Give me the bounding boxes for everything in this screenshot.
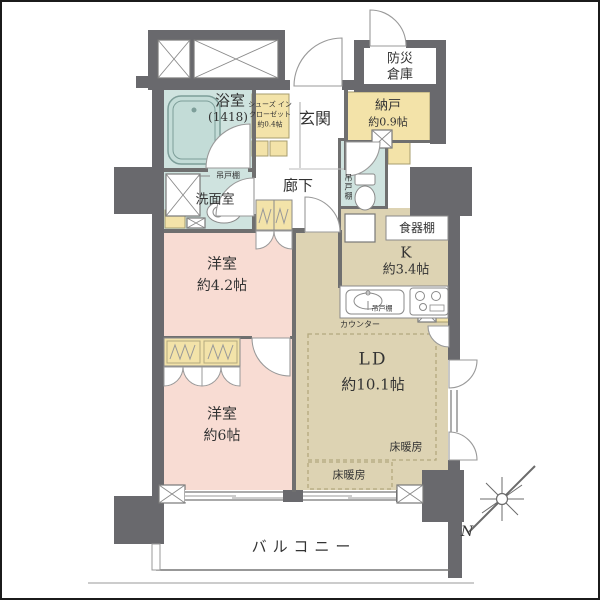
- western-room-6-size-label: 約6帖: [204, 429, 241, 443]
- kitchen-west-wall: [338, 230, 342, 288]
- living-dining-size-label: 約10.1帖: [341, 378, 404, 393]
- western-room-42-size-label: 約4.2帖: [197, 279, 247, 293]
- compass-icon: [469, 466, 535, 532]
- balcony-window-2: [303, 490, 396, 502]
- east-window: [451, 390, 457, 432]
- room6-closet: [164, 338, 240, 366]
- kitchen-size-label: 約3.4帖: [383, 264, 430, 277]
- bathroom-size-label: (1418): [208, 111, 248, 123]
- living-dining-label: LD: [359, 352, 388, 369]
- entrance-door-swing: [294, 38, 342, 86]
- wall-stub: [136, 76, 150, 88]
- left-pillar: [114, 167, 164, 214]
- sic-size-label: 約0.4帖: [257, 122, 282, 129]
- floor-plan: 防災 倉庫 浴室 (1418) シューズ イン クローゼット 約0.4帖 玄関 …: [0, 0, 600, 600]
- kitchen-cabinet-label: 吊戸棚: [372, 306, 393, 313]
- left-wall: [152, 90, 164, 498]
- bathroom-label: 浴室: [215, 94, 245, 109]
- floor-heating-label-ld: 床暖房: [390, 442, 423, 453]
- floor-heating-label-dk: 床暖房: [333, 470, 366, 481]
- bath-washroom-wall: [164, 168, 208, 172]
- toilet-wall: [338, 140, 341, 230]
- bousai-door-swing: [370, 10, 406, 46]
- balcony-label: バルコニー: [252, 540, 357, 555]
- western-room-6-label: 洋室: [207, 407, 237, 422]
- right-wall-upper: [430, 90, 446, 144]
- room42-room6-wall: [290, 336, 294, 339]
- toilet-bowl-icon: [355, 186, 375, 210]
- washroom-label: 洗面室: [195, 194, 234, 207]
- entrance-door-jamb-wall: [342, 80, 354, 90]
- toilet-cabinet-label: 吊戸棚: [344, 174, 352, 201]
- right-wall-kitchen: [448, 216, 460, 360]
- shoe-cabinet: [270, 141, 287, 156]
- toilet-tank: [355, 174, 375, 185]
- kitchen-storage-space: [345, 214, 375, 242]
- top-wall: [148, 80, 290, 90]
- toilet-wall: [385, 140, 388, 208]
- nando-label: 納戸: [375, 100, 401, 113]
- western-room-42-label: 洋室: [207, 257, 237, 272]
- washroom-hall-wall: [252, 170, 256, 178]
- nando-size-label: 約0.9帖: [368, 117, 408, 128]
- ne-corner-pillar: [410, 167, 472, 216]
- compass-north-label: N: [461, 525, 473, 539]
- entrance-label: 玄関: [299, 111, 331, 127]
- balcony-window-1: [185, 490, 283, 502]
- cupboard-label: 食器棚: [399, 222, 435, 234]
- balcony-partition: [152, 544, 160, 570]
- bousai-label-line1: 防災: [387, 53, 413, 66]
- hallway-label: 廊下: [283, 179, 313, 194]
- toilet-wall: [338, 138, 348, 141]
- sic-label-line2: クローゼット: [249, 112, 291, 119]
- east-door-swing-1: [449, 360, 477, 388]
- sic-label-line1: シューズ イン: [248, 102, 292, 109]
- hall-ld-door-swing: [305, 197, 340, 232]
- rooms-ld-wall: [292, 230, 296, 492]
- bathtub-drain: [192, 108, 197, 113]
- dining-nook-floor: [294, 230, 340, 324]
- kitchen-label: K: [400, 246, 411, 261]
- floor-plan-drawing: [2, 2, 600, 600]
- counter-label: カウンター: [340, 321, 380, 329]
- left-bottom-pillar: [114, 496, 164, 544]
- bousai-label-line2: 倉庫: [387, 69, 413, 82]
- washroom-cabinet-label: 吊戸棚: [216, 172, 240, 180]
- east-door-swing-2: [449, 432, 477, 460]
